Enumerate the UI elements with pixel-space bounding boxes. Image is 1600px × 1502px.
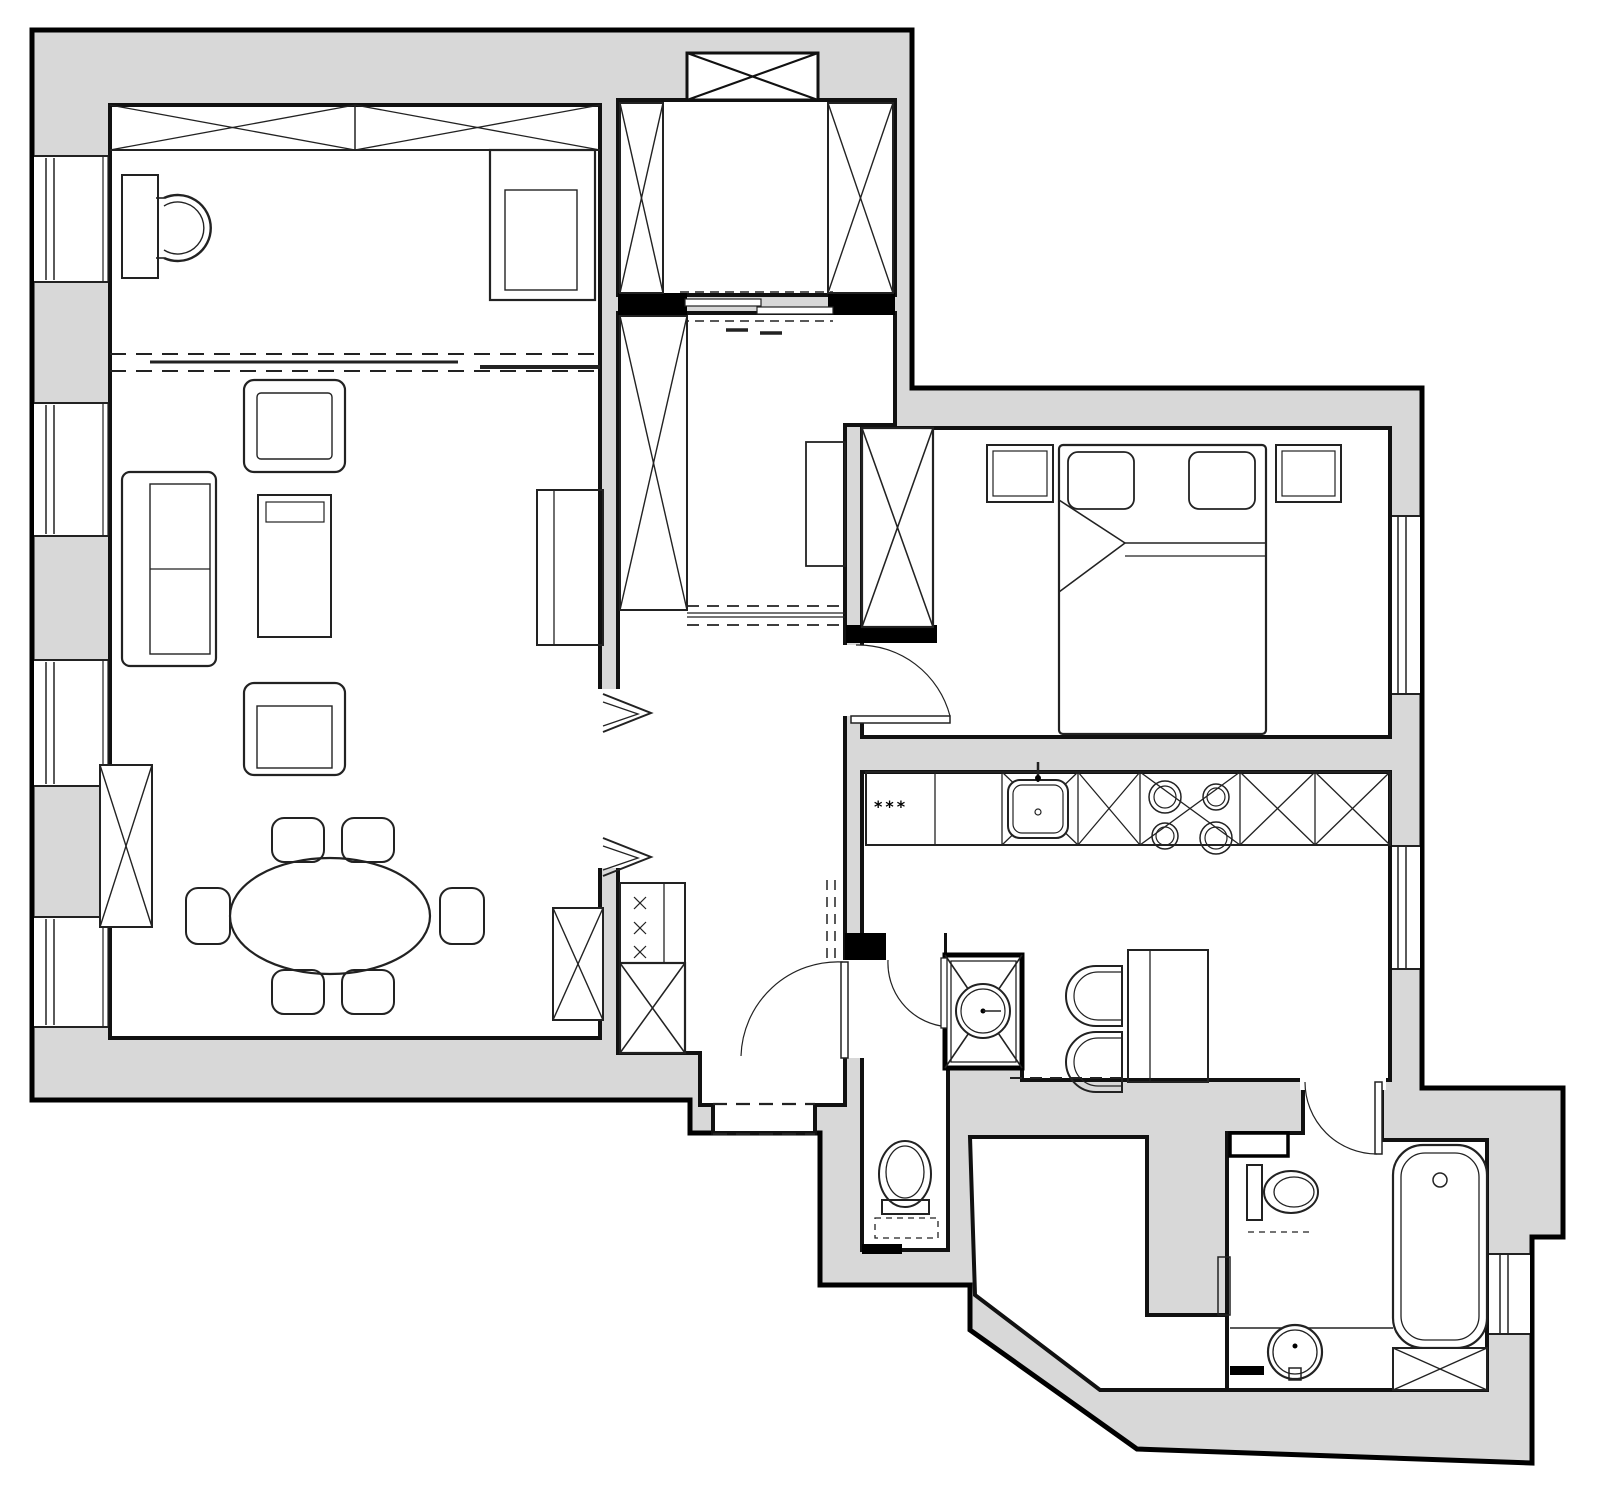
bathtub-cabinet bbox=[1393, 1348, 1487, 1390]
hall-wardrobe bbox=[620, 316, 687, 610]
living-cabinet-right bbox=[553, 908, 603, 1020]
hall-cabinet-x bbox=[620, 963, 685, 1053]
counter-mark: *** bbox=[874, 797, 908, 816]
window-left-2 bbox=[34, 402, 108, 537]
wall-niche-cabinet bbox=[687, 53, 818, 100]
kitchen-corridor-door-leaf bbox=[941, 958, 947, 1028]
window-bathroom bbox=[1489, 1253, 1530, 1335]
wall-stub-bath-toilet bbox=[1230, 1133, 1288, 1156]
bath-sink bbox=[1268, 1325, 1322, 1379]
wall-stub-sliding-right bbox=[828, 293, 895, 315]
window-left-4 bbox=[34, 916, 108, 1028]
bathroom-door-leaf bbox=[1375, 1082, 1382, 1154]
floor-plan-svg: *** bbox=[0, 0, 1600, 1502]
sliding-door-panel-b bbox=[757, 307, 833, 314]
closet-wardrobe-left bbox=[620, 103, 663, 293]
wall-stub-wc-bottom bbox=[862, 1244, 902, 1254]
room-living-dining bbox=[110, 105, 600, 1038]
doorway-bedroom bbox=[842, 645, 866, 716]
living-cabinet-left bbox=[100, 765, 152, 927]
room-bedroom bbox=[862, 428, 1390, 737]
floor-plan: *** bbox=[0, 0, 1600, 1502]
wall-stub-sliding-left bbox=[618, 293, 687, 315]
hall-corridor-door-leaf bbox=[841, 962, 848, 1058]
bathtub bbox=[1393, 1145, 1487, 1348]
doorway-kitchen-bathroom bbox=[1300, 1072, 1386, 1090]
bath-shelf-bar bbox=[1230, 1366, 1264, 1375]
doorway-kitchen-corridor bbox=[886, 930, 944, 964]
sink-faucet-dot bbox=[1035, 775, 1041, 781]
bedroom-wardrobe bbox=[862, 428, 933, 627]
window-left-3 bbox=[34, 659, 108, 787]
closet-wardrobe-right bbox=[828, 103, 893, 293]
bath-sink-dot bbox=[1293, 1344, 1298, 1349]
wall-stub-kitchen-corridor bbox=[845, 933, 886, 960]
bedroom-door-leaf bbox=[851, 716, 950, 723]
sliding-door-panel-a bbox=[685, 299, 761, 306]
window-left-1 bbox=[34, 155, 108, 283]
